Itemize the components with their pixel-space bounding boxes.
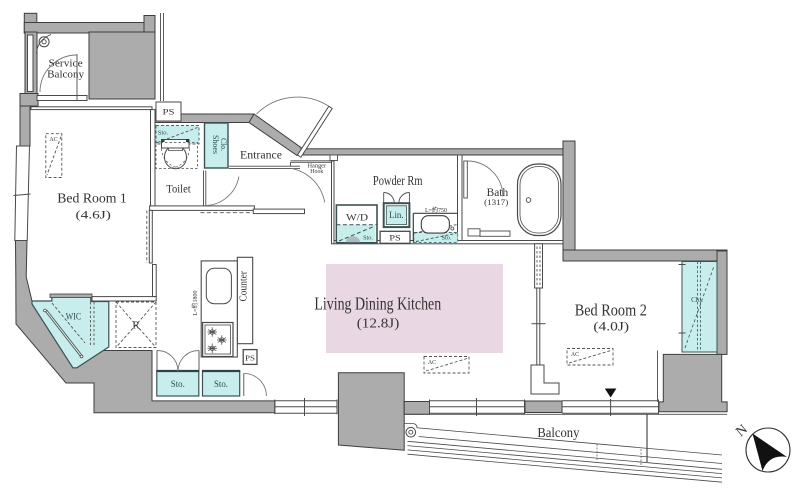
- svg-text:WIC: WIC: [66, 313, 82, 323]
- svg-text:Bed Room 1: Bed Room 1: [57, 190, 127, 205]
- svg-text:Counter: Counter: [239, 270, 250, 301]
- svg-text:Bed Room 2: Bed Room 2: [575, 301, 647, 320]
- svg-text:L=約750: L=約750: [425, 206, 447, 214]
- svg-text:Service: Service: [49, 58, 83, 69]
- svg-text:(1317): (1317): [484, 198, 508, 207]
- svg-text:Sto.: Sto.: [171, 379, 185, 389]
- svg-text:AC: AC: [49, 137, 57, 143]
- svg-text:Balcony: Balcony: [537, 426, 579, 441]
- svg-text:PS: PS: [389, 233, 401, 242]
- svg-text:Living Dining Kitchen: Living Dining Kitchen: [314, 293, 441, 313]
- svg-text:Clo.: Clo.: [219, 138, 228, 151]
- svg-text:Powder Rm: Powder Rm: [373, 173, 423, 188]
- svg-text:W/D: W/D: [346, 214, 368, 224]
- svg-text:Toilet: Toilet: [166, 182, 191, 196]
- svg-text:(4.6J): (4.6J): [75, 207, 110, 221]
- svg-text:Hook: Hook: [310, 168, 324, 175]
- svg-text:L=約1800: L=約1800: [191, 290, 199, 315]
- svg-text:(12.8J): (12.8J): [357, 317, 400, 332]
- svg-text:PS: PS: [163, 108, 175, 117]
- svg-text:Sto.: Sto.: [442, 234, 452, 241]
- svg-text:Clo.: Clo.: [691, 296, 703, 304]
- svg-text:Balcony: Balcony: [47, 70, 85, 81]
- svg-text:Sto.: Sto.: [214, 379, 228, 389]
- svg-text:R: R: [132, 320, 140, 332]
- svg-text:AC: AC: [428, 360, 436, 366]
- svg-text:PS: PS: [245, 355, 255, 363]
- svg-text:Sto.: Sto.: [158, 130, 169, 137]
- svg-text:Entrance: Entrance: [240, 150, 282, 162]
- svg-text:(4.0J): (4.0J): [593, 319, 629, 333]
- svg-text:Lin.: Lin.: [389, 210, 404, 220]
- svg-text:AC: AC: [571, 352, 579, 358]
- svg-text:Sto.: Sto.: [363, 235, 373, 242]
